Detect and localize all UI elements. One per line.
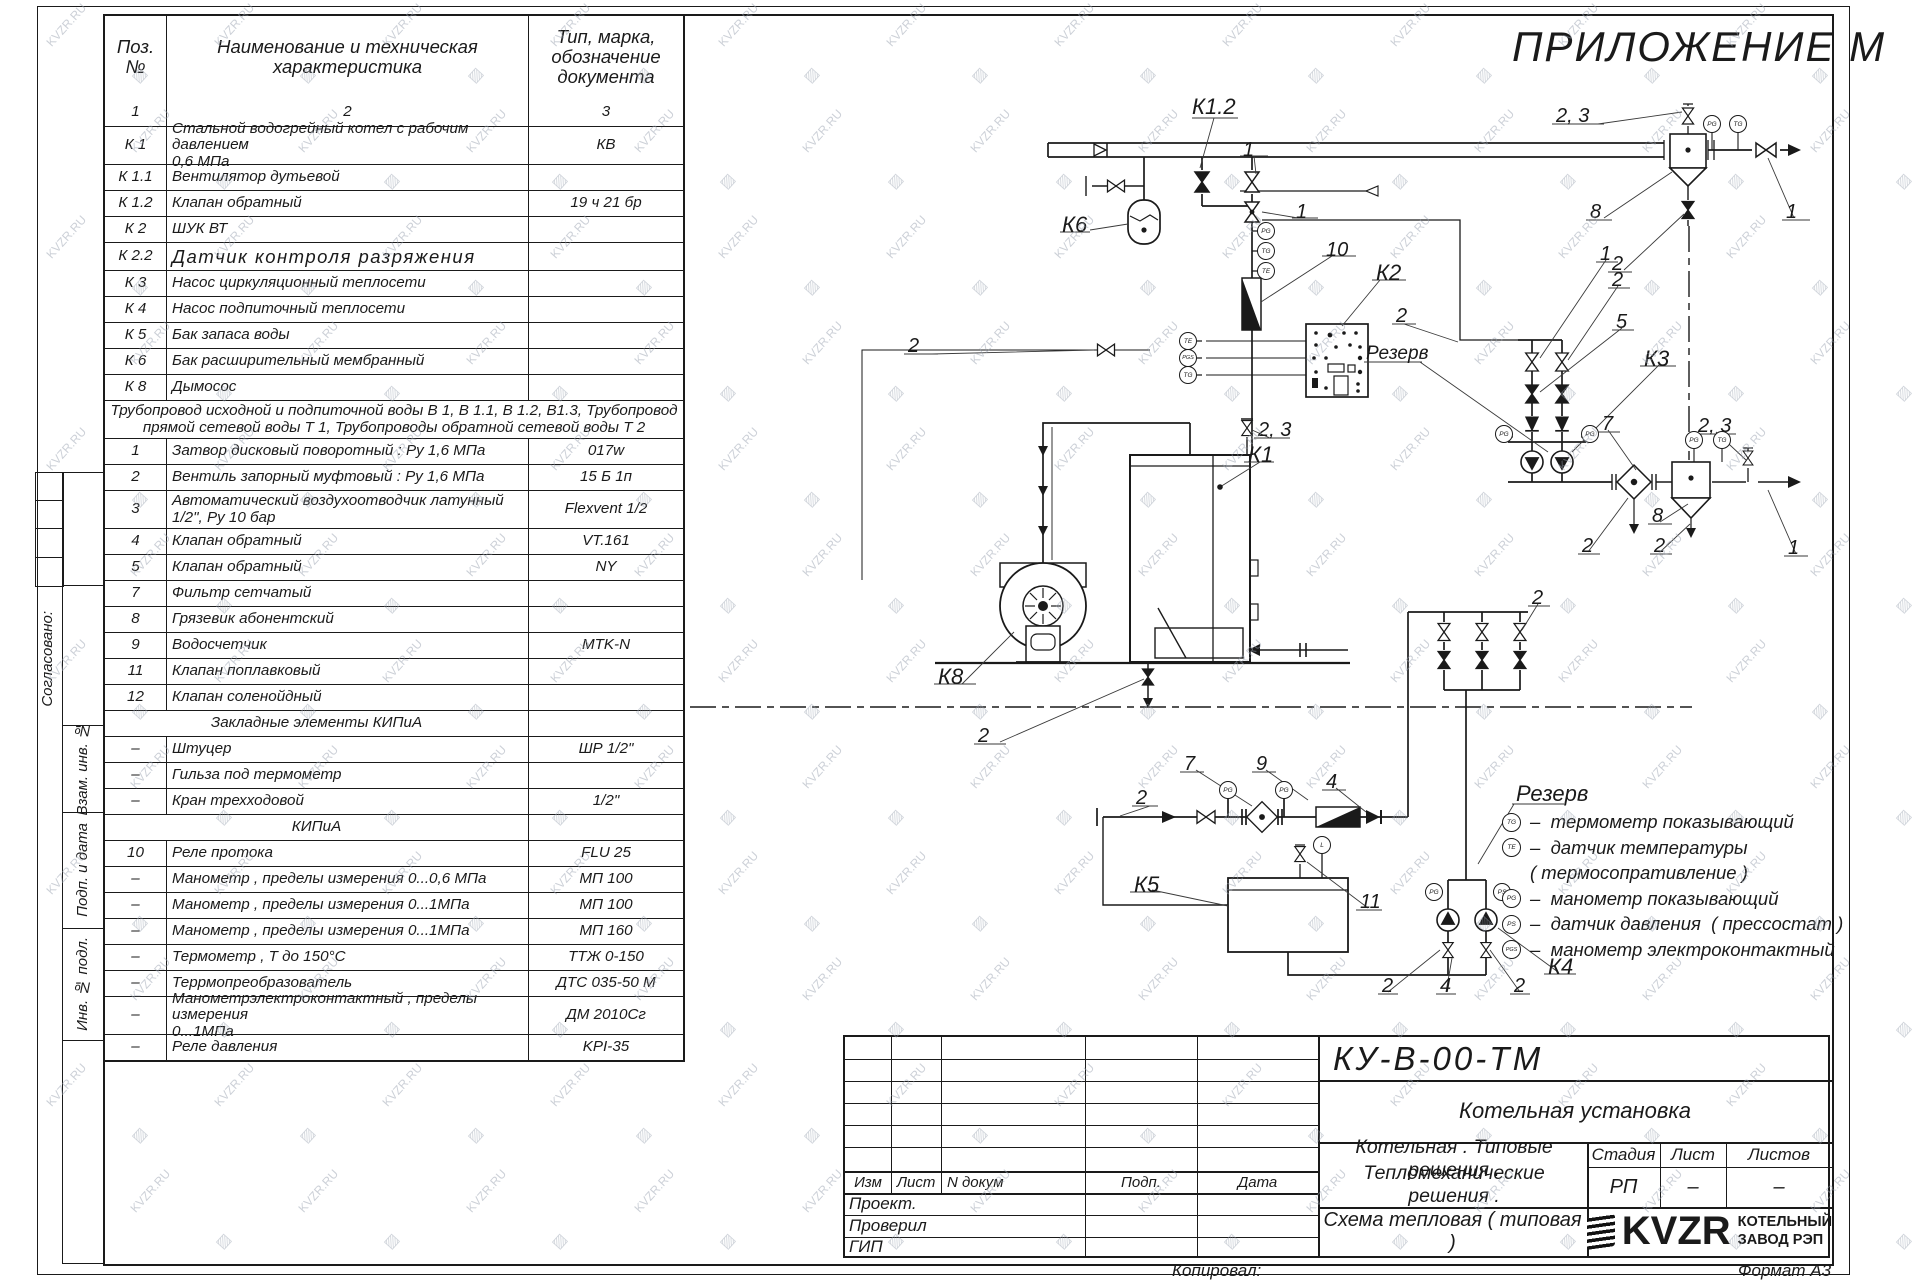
- sensor-badge: PG: [1257, 222, 1275, 240]
- schematic-label: 2: [1382, 976, 1393, 996]
- sensor-badge: PGS: [1179, 349, 1197, 367]
- schematic-label: К8: [938, 666, 963, 688]
- legend-text: ( термосопративление ): [1530, 862, 1748, 884]
- sensor-badge: TG: [1179, 366, 1197, 384]
- appendix-title: ПРИЛОЖЕНИЕ М: [1512, 26, 1886, 68]
- schematic-label: 2: [1532, 588, 1543, 608]
- schematic-label: 11: [1360, 892, 1381, 912]
- sensor-badge: TE: [1179, 332, 1197, 350]
- legend-symbol-icon: PS: [1502, 915, 1521, 934]
- schematic-label: 2: [1514, 976, 1525, 996]
- schematic-label: 8: [1652, 506, 1663, 526]
- legend-text: – манометр показывающий: [1530, 888, 1778, 910]
- legend-item: ( термосопративление ): [1502, 863, 1832, 884]
- schematic-label: 1: [1296, 202, 1307, 222]
- sensor-badge: PG: [1275, 781, 1293, 799]
- sensor-badge: L: [1313, 836, 1331, 854]
- legend-symbol-icon: TE: [1502, 838, 1521, 857]
- schematic-label: 1: [1243, 140, 1254, 160]
- legend-item: PGS– манометр электроконтактный: [1502, 939, 1832, 960]
- schematic-label: К1.2: [1192, 96, 1236, 118]
- schematic-label: 8: [1590, 202, 1601, 222]
- schematic-label: К3: [1644, 348, 1669, 370]
- copied-label: Копировал:: [1172, 1262, 1261, 1279]
- schematic-label: 5: [1616, 312, 1627, 332]
- schematic-label: 2: [908, 336, 919, 356]
- sensor-badge: PG: [1495, 425, 1513, 443]
- sensor-badge: PG: [1219, 781, 1237, 799]
- drawing-sheet: Согласовано: Взам. инв. № Подп. и дата И…: [0, 0, 1920, 1280]
- legend-text: – термометр показывающий: [1530, 811, 1794, 833]
- schematic-label: К1: [1248, 444, 1273, 466]
- sensor-badge: PG: [1703, 115, 1721, 133]
- schematic-label: 2: [1612, 270, 1623, 290]
- schematic-label: 7: [1602, 414, 1613, 434]
- schematic-label: 2: [1396, 306, 1407, 326]
- schematic-label: 2, 3: [1698, 416, 1731, 436]
- sensor-badge: TG: [1257, 242, 1275, 260]
- schematic-label: 2: [1654, 536, 1665, 556]
- schematic-label: 2: [978, 726, 989, 746]
- legend-text: – манометр электроконтактный: [1530, 939, 1835, 961]
- schematic-label: 4: [1440, 976, 1451, 996]
- legend-item: TG– термометр показывающий: [1502, 812, 1832, 833]
- legend-symbol-icon: PG: [1502, 889, 1521, 908]
- schematic-label: 2, 3: [1556, 106, 1589, 126]
- schematic-label: К2: [1376, 262, 1401, 284]
- legend-item: PG– манометр показывающий: [1502, 888, 1832, 909]
- legend-symbol-icon: PGS: [1502, 940, 1521, 959]
- legend-items: TG– термометр показывающийTE– датчик тем…: [1502, 812, 1832, 961]
- legend-text: – датчик температуры: [1530, 837, 1748, 859]
- legend: Резерв TG– термометр показывающийTE– дат…: [1502, 781, 1832, 960]
- schematic-canvas: [0, 0, 1920, 1280]
- schematic-label: К5: [1134, 874, 1159, 896]
- sensor-badge: TG: [1729, 115, 1747, 133]
- format-label: Формат А3: [1738, 1262, 1831, 1279]
- legend-title: Резерв: [1516, 781, 1832, 807]
- schematic-label: 4: [1326, 772, 1337, 792]
- sensor-badge: PG: [1581, 425, 1599, 443]
- schematic-label: 1: [1788, 538, 1799, 558]
- schematic-label: 10: [1326, 240, 1348, 260]
- legend-item: PS– датчик давления ( прессостат ): [1502, 914, 1832, 935]
- schematic-label: 1: [1786, 202, 1797, 222]
- schematic-label: 2, 3: [1258, 420, 1291, 440]
- legend-item: TE– датчик температуры: [1502, 837, 1832, 858]
- sensor-badge: TE: [1257, 262, 1275, 280]
- schematic-label: 2: [1582, 536, 1593, 556]
- schematic-label: 2: [1136, 788, 1147, 808]
- schematic-label: 9: [1256, 754, 1267, 774]
- sensor-badge: PG: [1425, 883, 1443, 901]
- schematic-label: 7: [1184, 754, 1195, 774]
- legend-text: – датчик давления ( прессостат ): [1530, 913, 1843, 935]
- schematic-label: К6: [1062, 214, 1087, 236]
- schematic-label: 1: [1600, 244, 1611, 264]
- legend-symbol-icon: TG: [1502, 813, 1521, 832]
- schematic-label: Резерв: [1366, 344, 1428, 363]
